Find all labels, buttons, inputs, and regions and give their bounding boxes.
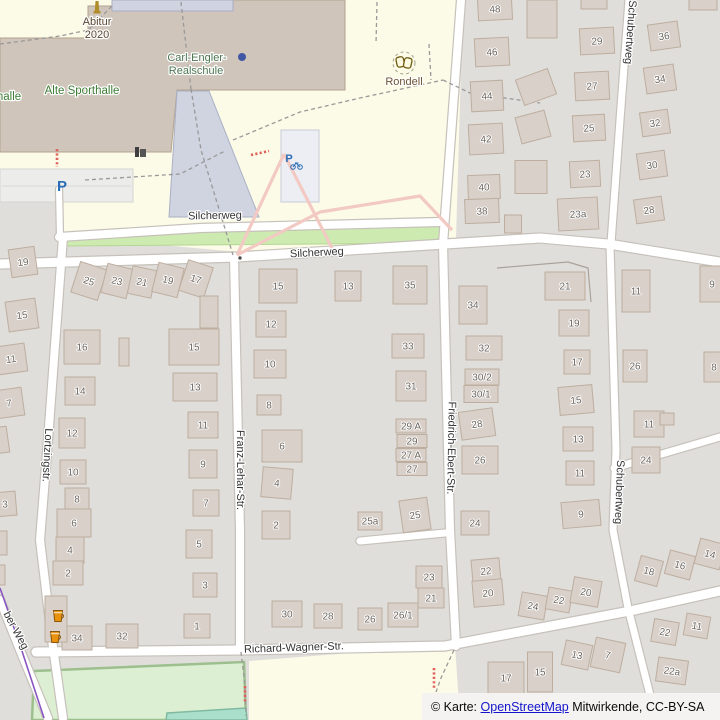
building-22: 22 (651, 619, 680, 646)
building-13: 13 (335, 271, 361, 301)
building-46: 46 (474, 37, 509, 67)
house-number: 24 (469, 519, 481, 530)
house-number: 42 (480, 134, 492, 146)
building-21: 21 (127, 266, 156, 298)
house-number: 23 (423, 573, 435, 584)
building-17: 17 (488, 662, 524, 694)
house-number: 32 (478, 344, 490, 355)
house-number: 15 (534, 668, 546, 679)
building-38: 38 (465, 198, 500, 223)
house-number: 28 (643, 205, 656, 218)
blue-dot-icon (238, 53, 246, 61)
area-label: halle (0, 91, 21, 103)
building-48: 48 (477, 0, 512, 21)
building-32: 32 (639, 109, 670, 137)
area-label: Carl-Engler- (167, 52, 227, 64)
attribution-prefix: © Karte: (431, 700, 481, 714)
building-15: 15 (5, 298, 39, 332)
house-number: 29 (591, 36, 603, 48)
house-number: 29 (406, 437, 418, 448)
house-number: 17 (500, 674, 512, 685)
house-number: 25 (583, 123, 595, 135)
house-number: 14 (74, 387, 86, 398)
street-label-schubertweg: Schubertweg (612, 460, 626, 525)
house-number: 26 (629, 362, 641, 373)
area-label: Realschule (169, 65, 223, 77)
building-13: 13 (563, 427, 593, 451)
house-number: 34 (71, 634, 83, 645)
building-20: 20 (472, 579, 504, 608)
house-number: 31 (405, 382, 417, 393)
bollard-icon (238, 256, 241, 259)
building-21: 21 (418, 588, 444, 608)
building-17: 17 (564, 350, 590, 374)
building-22a: 22a (655, 657, 688, 685)
building-2: 2 (262, 511, 290, 539)
house-number: 13 (572, 435, 584, 446)
house-number: 21 (559, 282, 571, 293)
house-number: 28 (322, 612, 334, 623)
parking-icon: P (57, 178, 67, 195)
house-number: 13 (189, 383, 201, 394)
building-4: 4 (56, 537, 84, 563)
house-number: 44 (481, 91, 493, 103)
house-number: 8 (266, 401, 272, 412)
building-23: 23 (569, 160, 600, 188)
house-number: 12 (265, 320, 277, 331)
house-number: 27 (406, 465, 418, 476)
building (0, 531, 7, 555)
house-number: 26/1 (393, 611, 413, 622)
building (0, 565, 5, 585)
map-viewport[interactable]: 4846444240382927252323a36343230282523211… (0, 0, 720, 720)
building-4: 4 (261, 467, 294, 500)
svg-text:P: P (285, 153, 292, 165)
house-number: 23a (569, 209, 587, 221)
svg-text:P: P (57, 178, 67, 195)
house-number: 15 (272, 282, 284, 293)
building-23a: 23a (557, 197, 599, 231)
building-30-1: 30/1 (464, 386, 498, 403)
building-36: 36 (647, 21, 680, 51)
building-9: 9 (700, 266, 720, 302)
house-number: 2 (273, 521, 279, 532)
building (515, 161, 547, 194)
area-label: Rondell (385, 76, 422, 88)
house-number: 6 (71, 519, 77, 530)
building-11: 11 (188, 412, 218, 438)
house-number: 16 (76, 343, 88, 354)
bicycle-parking-area (281, 130, 319, 202)
building-20: 20 (570, 577, 602, 607)
house-number: 46 (486, 47, 498, 59)
house-number: 10 (264, 360, 276, 371)
building-11: 11 (622, 270, 650, 312)
house-number: 5 (196, 540, 202, 551)
building-14: 14 (65, 377, 95, 405)
building-6: 6 (57, 509, 91, 537)
house-number: 6 (279, 442, 285, 453)
school-north-building (112, 0, 233, 11)
building-40: 40 (468, 174, 501, 199)
house-number: 8 (711, 363, 717, 374)
house-number: 27 A (401, 451, 421, 462)
building-3: 3 (0, 491, 17, 517)
house-number: 34 (467, 301, 479, 312)
house-number: 9 (200, 460, 206, 471)
house-number: 36 (658, 31, 671, 44)
house-number: 15 (188, 343, 200, 354)
building-16: 16 (64, 330, 100, 364)
building-11: 11 (566, 461, 594, 485)
house-number: 8 (74, 495, 80, 506)
building-9: 9 (561, 499, 601, 528)
house-number: 1 (194, 622, 200, 633)
house-number: 13 (342, 282, 354, 293)
building-12: 12 (256, 311, 286, 337)
building-13: 13 (173, 373, 217, 401)
house-number: 33 (402, 342, 414, 353)
house-number: 30/1 (471, 390, 491, 401)
building-25a: 25a (358, 512, 382, 530)
house-number: 38 (476, 206, 488, 217)
house-number: 34 (654, 74, 667, 87)
house-number: 20 (482, 588, 494, 600)
building-3: 3 (193, 573, 217, 597)
building (527, 0, 557, 38)
house-number: 11 (631, 287, 642, 298)
area-label: 2020 (85, 29, 109, 41)
house-number: 15 (570, 395, 582, 407)
building-8: 8 (257, 395, 281, 415)
house-number: 7 (203, 499, 209, 510)
building-13: 13 (561, 640, 593, 670)
house-number: 10 (67, 468, 79, 479)
building-32: 32 (466, 336, 502, 360)
house-number: 21 (425, 594, 437, 605)
house-number: 30 (281, 610, 293, 621)
building-26: 26 (462, 446, 498, 474)
house-number: 2 (65, 569, 71, 580)
building (660, 413, 674, 425)
house-number: 17 (571, 358, 583, 369)
building-33: 33 (392, 334, 424, 358)
house-number: 12 (66, 429, 78, 440)
building-34: 34 (459, 286, 487, 324)
house-number: 35 (404, 281, 416, 292)
building-15: 15 (259, 269, 297, 303)
house-number: 3 (202, 581, 208, 592)
building-24: 24 (632, 447, 660, 473)
building-19: 19 (559, 310, 589, 336)
building-10: 10 (60, 460, 86, 484)
building-44: 44 (470, 80, 504, 112)
road-school-driveway (59, 189, 60, 237)
building-24: 24 (461, 511, 489, 535)
building-30: 30 (636, 150, 667, 180)
map-canvas[interactable]: 4846444240382927252323a36343230282523211… (0, 0, 720, 720)
building-8: 8 (704, 352, 720, 382)
building-22: 22 (545, 587, 572, 613)
building-2: 2 (53, 561, 83, 585)
house-number: 11 (5, 354, 17, 366)
house-number: 40 (478, 182, 490, 193)
building-8: 8 (65, 488, 89, 510)
building-25: 25 (572, 114, 605, 142)
house-number: 11 (644, 420, 655, 431)
building-28: 28 (458, 408, 496, 440)
building (119, 338, 129, 366)
house-number: 27 (586, 81, 598, 93)
building-11: 11 (683, 613, 710, 639)
building-29: 29 (579, 27, 614, 55)
building-7: 7 (590, 637, 626, 673)
area-label: Abitur (83, 16, 112, 28)
building-27-A: 27 A (396, 449, 426, 462)
building-19: 19 (8, 246, 38, 277)
house-number: 4 (67, 546, 73, 557)
house-number: 19 (17, 257, 30, 270)
house-number: 26 (364, 615, 376, 626)
building-29-A: 29 A (396, 419, 426, 433)
building (689, 0, 717, 10)
building-26: 26 (623, 350, 647, 382)
building-21: 21 (545, 272, 585, 300)
building-23: 23 (416, 566, 442, 588)
building-35: 35 (393, 266, 427, 304)
house-number: 23 (579, 169, 591, 181)
building-30-2: 30/2 (465, 369, 499, 385)
house-number: 24 (640, 456, 652, 467)
building-25: 25 (399, 497, 431, 533)
building-34: 34 (643, 64, 676, 94)
building (505, 215, 522, 233)
building-10: 10 (254, 350, 286, 378)
building-32: 32 (106, 624, 138, 648)
building-7: 7 (193, 490, 219, 516)
building-11: 11 (0, 343, 28, 375)
attribution-bar: © Karte: OpenStreetMap Mitwirkende, CC-B… (422, 693, 720, 720)
building-5: 5 (186, 530, 212, 558)
building-15: 15 (528, 652, 553, 692)
building-28: 28 (314, 604, 342, 628)
building-28: 28 (633, 196, 664, 224)
house-number: 26 (474, 456, 486, 467)
building-27: 27 (574, 71, 609, 101)
house-number: 30 (646, 160, 659, 173)
house-number: 25a (362, 517, 379, 528)
building-26: 26 (358, 608, 382, 630)
house-number: 11 (575, 469, 586, 480)
building-42: 42 (468, 123, 504, 155)
street-label-silcherweg: Silcherweg (188, 210, 242, 223)
building-15: 15 (169, 329, 219, 365)
street-label-franz-lehar-str-: Franz-Lehar-Str. (234, 430, 246, 510)
building-9: 9 (189, 450, 217, 478)
area-label: Alte Sporthalle (45, 85, 120, 97)
building-15: 15 (558, 385, 594, 416)
house-number: 48 (489, 4, 501, 16)
house-number: 32 (649, 118, 662, 131)
building-7: 7 (0, 387, 25, 419)
building-29: 29 (397, 435, 427, 448)
building-26-1: 26/1 (388, 603, 418, 627)
house-number: 30/2 (472, 373, 492, 384)
building-24: 24 (518, 592, 548, 620)
house-number: 32 (116, 632, 128, 643)
house-number: 15 (16, 310, 29, 323)
house-number: 11 (198, 421, 209, 432)
house-number: 29 A (401, 422, 421, 433)
building-31: 31 (396, 371, 426, 401)
openstreetmap-link[interactable]: OpenStreetMap (481, 700, 569, 714)
house-number: 28 (471, 419, 484, 432)
building-30: 30 (272, 601, 302, 627)
building-6: 6 (262, 430, 302, 462)
street-label-friedrich-ebert-str-: Friedrich-Ebert-Str. (444, 401, 458, 494)
building-1: 1 (184, 614, 210, 638)
attribution-suffix: Mitwirkende, CC-BY-SA (569, 700, 705, 714)
building (200, 296, 218, 328)
house-number: 25 (409, 510, 422, 523)
building-27: 27 (397, 463, 427, 476)
building (581, 0, 607, 9)
house-number: 9 (709, 280, 715, 291)
house-number: 22 (480, 566, 492, 578)
building-12: 12 (59, 418, 85, 448)
house-number: 19 (568, 319, 580, 330)
